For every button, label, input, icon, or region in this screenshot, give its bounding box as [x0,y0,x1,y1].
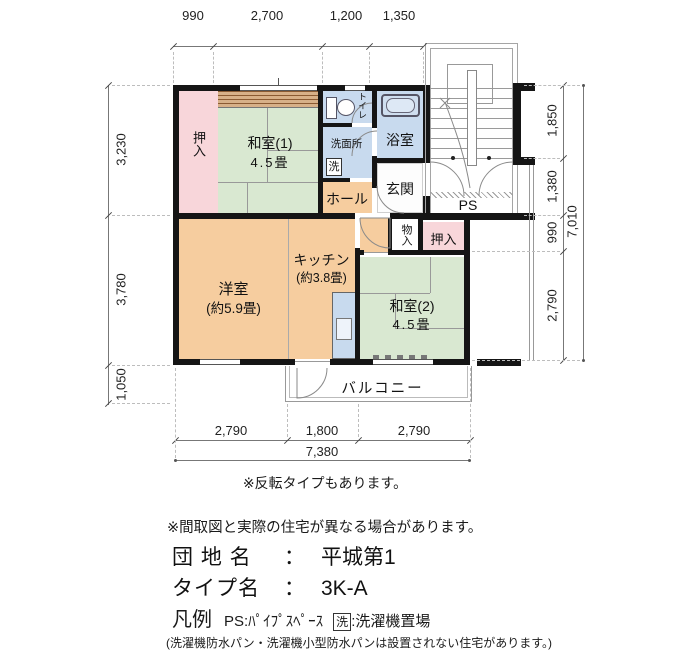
dim-extension [213,52,214,83]
window-sill-hatch [373,355,433,359]
dim-dot [174,459,177,462]
dim-tick [105,400,112,407]
label-hall: ホール [320,189,374,209]
washitsu1-wood-strip [218,91,322,108]
wall-segment [372,91,377,128]
window [345,85,365,91]
dim-dot [582,359,585,362]
dim-right-4: 2,790 [545,276,560,336]
label-yoshitsu-size: (約5.9畳) [179,297,288,317]
dim-left-1: 3,230 [114,120,129,180]
dim-right-1: 1,850 [545,91,560,151]
footer-fine-print: (洗濯機防水パン・洗濯機小型防水パンは設置されない住宅があります。) [166,634,552,650]
type-name-colon: ： [284,572,305,602]
window-center-tick [278,78,279,85]
toilet-tank-icon [326,97,337,119]
washer-space-label: 洗 [329,161,340,173]
door-sill [364,252,388,253]
type-name-label: タイプ名 [172,572,278,602]
dim-extension [175,368,176,458]
legend-row: 凡例 PS:ﾊﾟｲﾌﾟｽﾍﾟｰｽ 洗 :洗濯機置場 [172,603,430,632]
type-name-value: 3K-A [321,577,368,601]
stair-dot [451,156,455,160]
label-balcony: バルコニー [310,377,455,398]
floorplan-page: 洗 [0,0,700,650]
dim-extension [470,368,471,458]
wall-segment [322,178,350,182]
dim-top-4: 1,350 [369,8,429,23]
dim-extension [472,360,580,361]
legend-washer-desc: :洗濯機置場 [351,610,430,631]
dim-extension [112,85,170,86]
label-washitsu1-size: 4.5畳 [218,152,322,171]
wall-segment [423,213,535,220]
estate-name-colon: ： [284,541,305,571]
room-divider-line [288,218,289,359]
wall-segment [173,359,200,365]
legend-washer-box: 洗 [333,613,351,631]
estate-name-row: 団 地 名 ： 平城第1 [172,541,396,571]
dim-line-bottom-total [175,460,470,461]
type-name-row: タイプ名 ： 3K-A [172,572,368,602]
label-kitchen-size: (約3.8畳) [286,267,357,286]
dim-extension [358,404,359,437]
label-monoire: 物入 [398,224,414,246]
tatami-line [218,182,322,183]
dim-left-3: 1,050 [114,355,129,415]
label-oshiire2: 押入 [423,229,464,248]
dim-top-3: 1,200 [316,8,376,23]
window [240,85,317,91]
wall-segment [240,359,295,365]
legend-title: 凡例 [172,603,212,632]
label-oshiire1: 押入 [189,131,208,157]
wall-segment [388,218,392,252]
legend-ps: PS:ﾊﾟｲﾌﾟｽﾍﾟｰｽ [224,610,323,631]
label-ps: PS [448,197,488,213]
dim-right-3: 990 [545,203,560,263]
dim-extension [112,215,170,216]
dim-line-left [108,85,109,405]
building-edge-line [529,165,530,360]
dim-bottom-2: 1,800 [292,423,352,438]
dim-top-2: 2,700 [237,8,297,23]
dim-line-bottom [175,440,470,441]
room-hall-nook [360,218,388,252]
dim-extension [287,404,288,437]
wall-segment [388,250,470,255]
dim-extension [369,52,370,83]
dim-extension [423,52,424,83]
dim-dot [582,84,585,87]
wall-segment [513,83,521,165]
dim-top-1: 990 [163,8,223,23]
wall-segment [173,85,240,91]
label-senmenjo: 洗面所 [320,136,373,151]
footer-note: ※間取図と実際の住宅が異なる場合があります。 [167,516,482,537]
tatami-line [430,257,431,293]
washer-space-box: 洗 [326,158,342,176]
label-toilet: トイレ [356,92,369,119]
wall-segment [330,359,373,365]
note-flip: ※反転タイプもあります。 [230,473,420,493]
estate-name-label: 団 地 名 [172,541,278,571]
label-yoshitsu: 洋室 [179,278,288,299]
dim-extension [173,52,174,83]
dim-dot [468,459,471,462]
window [200,359,240,365]
kitchen-sink-basin [336,318,352,340]
dim-line-right-total [583,85,584,360]
wall-segment [173,213,355,219]
stair-dot [487,156,491,160]
dim-bottom-total: 7,380 [292,444,352,459]
label-washitsu1: 和室(1) [218,133,322,153]
dim-extension [322,52,323,83]
toilet-bowl-icon [337,99,355,116]
dim-right-total: 7,010 [565,192,580,252]
label-washitsu2-size: 4.5畳 [360,314,464,333]
wall-segment [173,85,179,365]
label-bathroom: 浴室 [377,130,423,150]
tatami-line [247,182,248,213]
wall-segment [322,123,352,127]
wall-segment [377,158,423,163]
wall-segment [464,218,470,365]
building-edge-line [533,165,534,360]
dim-bottom-3: 2,790 [384,423,444,438]
dim-bottom-1: 2,790 [201,423,261,438]
label-washitsu2: 和室(2) [360,296,464,316]
bathtub-inner-icon [386,98,415,113]
door-sill [295,361,330,362]
dim-left-2: 3,780 [114,260,129,320]
dim-extension [524,85,580,86]
stair-divider [467,70,477,166]
label-genkan: 玄関 [377,179,423,199]
estate-name-value: 平城第1 [321,541,396,571]
window [373,359,433,365]
